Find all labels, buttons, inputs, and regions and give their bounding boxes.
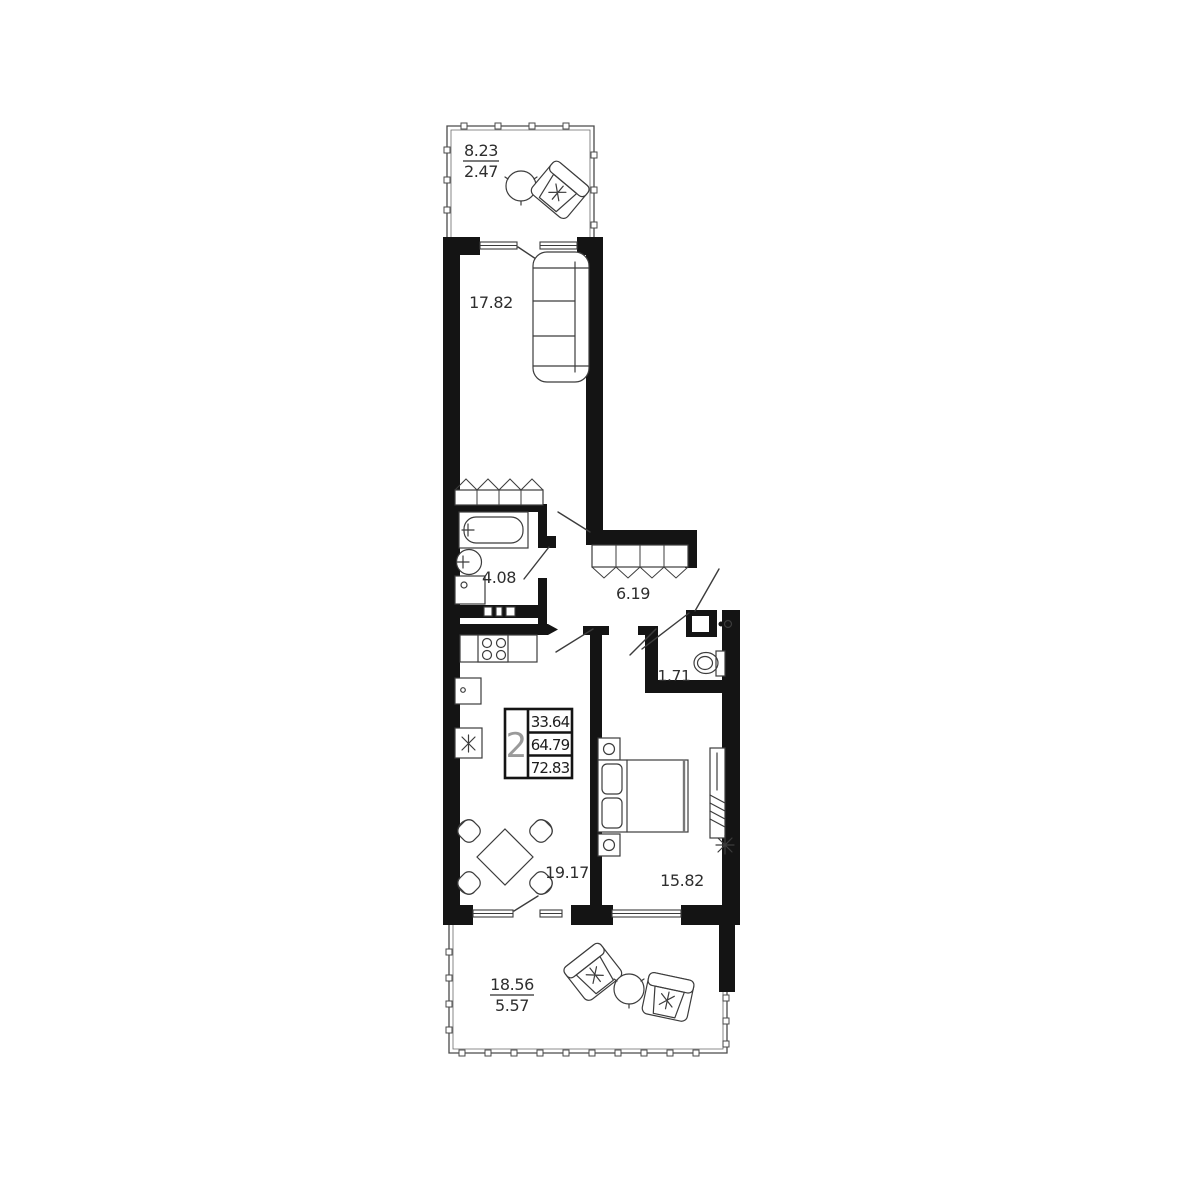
vent-shaft-opening: [692, 616, 709, 632]
terrace-bottom-area-reduced: 5.57: [495, 996, 529, 1015]
apartment-area-value: 64.79: [531, 736, 570, 754]
apartment-info-box: 2 33.64 64.79 72.83: [505, 709, 572, 778]
washing-machine: [455, 576, 485, 604]
hallway-area: 6.19: [616, 584, 650, 603]
terrace-bottom-table: [614, 974, 644, 1008]
bathroom-sink: [457, 550, 482, 575]
terrace-top-area: 8.23: [464, 141, 498, 160]
kitchen-door-leaf: [556, 629, 593, 652]
total-area-value: 72.83: [531, 759, 570, 777]
kitchen-sink: [455, 678, 481, 704]
annotation-leader-line: [558, 512, 590, 532]
nightstand: [598, 834, 620, 856]
bathroom-door-leaf: [524, 547, 549, 579]
floor-plan-svg: 8.23 2.47 17.82 4.08 6.19 1.71 19.17 15.…: [0, 0, 1184, 1184]
living-room-sofa: [533, 252, 589, 382]
nightstand: [598, 738, 620, 760]
terrace-bottom-armchair: [641, 972, 695, 1023]
dining-table: [454, 816, 556, 898]
label-terrace-bottom: 18.56 5.57: [490, 975, 534, 1015]
bathroom-area: 4.08: [482, 568, 516, 587]
fridge: [455, 728, 482, 758]
toilet: [694, 651, 725, 676]
kitchen-living-area: 19.17: [545, 863, 589, 882]
bedroom-window: [612, 910, 681, 917]
terrace-top-area-reduced: 2.47: [464, 162, 498, 181]
wc-area: 1.71: [658, 667, 691, 685]
bedroom-area: 15.82: [660, 871, 704, 890]
terrace-top-armchair: [529, 159, 591, 221]
bathtub: [459, 512, 528, 548]
closet-above-bathroom: [455, 479, 543, 505]
terrace-bottom-area: 18.56: [490, 975, 534, 994]
kitchen-window: [473, 910, 562, 917]
living-room-window: [480, 242, 577, 249]
kitchen-counter: [460, 635, 537, 662]
entry-door-leaf: [695, 569, 719, 611]
bed: [598, 738, 688, 856]
terrace-bottom-door-leaf: [514, 896, 538, 911]
room-count: 2: [506, 726, 528, 766]
hallway-closet: [592, 545, 688, 578]
label-terrace-top: 8.23 2.47: [463, 141, 499, 181]
floor-plan-page: 8.23 2.47 17.82 4.08 6.19 1.71 19.17 15.…: [0, 0, 1184, 1184]
living-area-value: 33.64: [531, 713, 570, 731]
living-room-area: 17.82: [469, 293, 513, 312]
